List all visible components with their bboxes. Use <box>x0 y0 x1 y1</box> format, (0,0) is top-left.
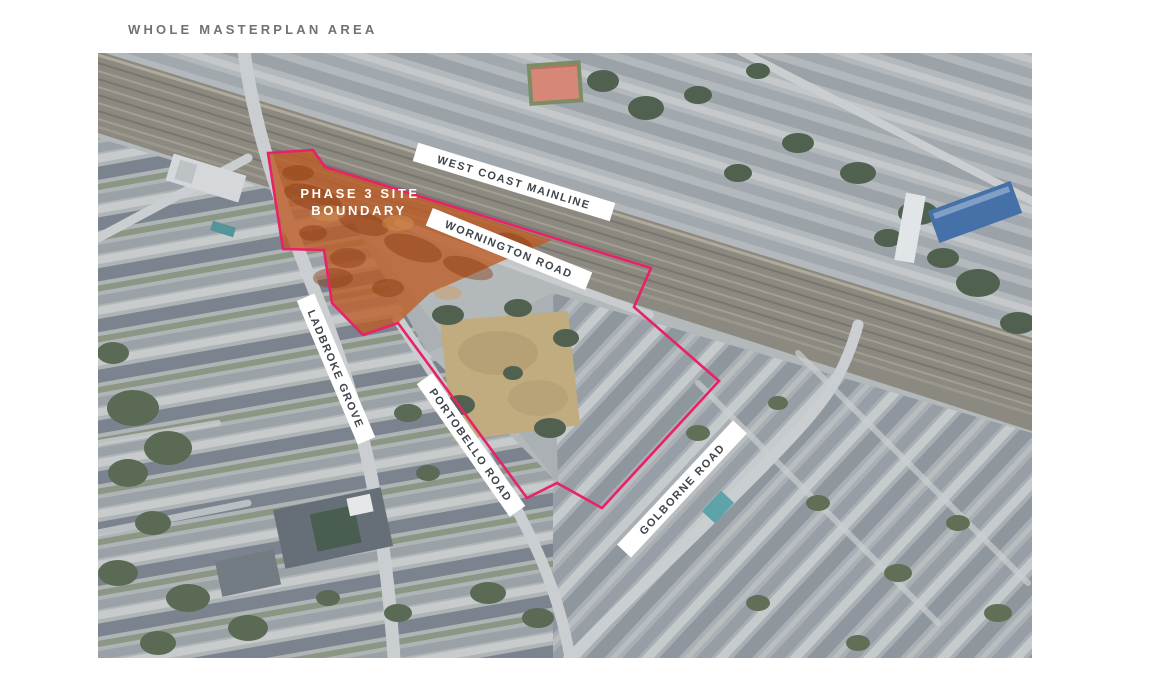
landmarks <box>98 53 1032 658</box>
aerial-map-svg: PHASE 3 SITE BOUNDARY WEST COAST MAINLIN… <box>98 53 1032 658</box>
masterplan-aerial-map: PHASE 3 SITE BOUNDARY WEST COAST MAINLIN… <box>98 53 1032 658</box>
page-title: WHOLE MASTERPLAN AREA <box>128 22 377 37</box>
phase3-label-line1: PHASE 3 SITE <box>300 186 419 201</box>
phase3-label-line2: BOUNDARY <box>311 203 406 218</box>
page-root: { "page": { "title": "WHOLE MASTERPLAN A… <box>0 0 1170 680</box>
